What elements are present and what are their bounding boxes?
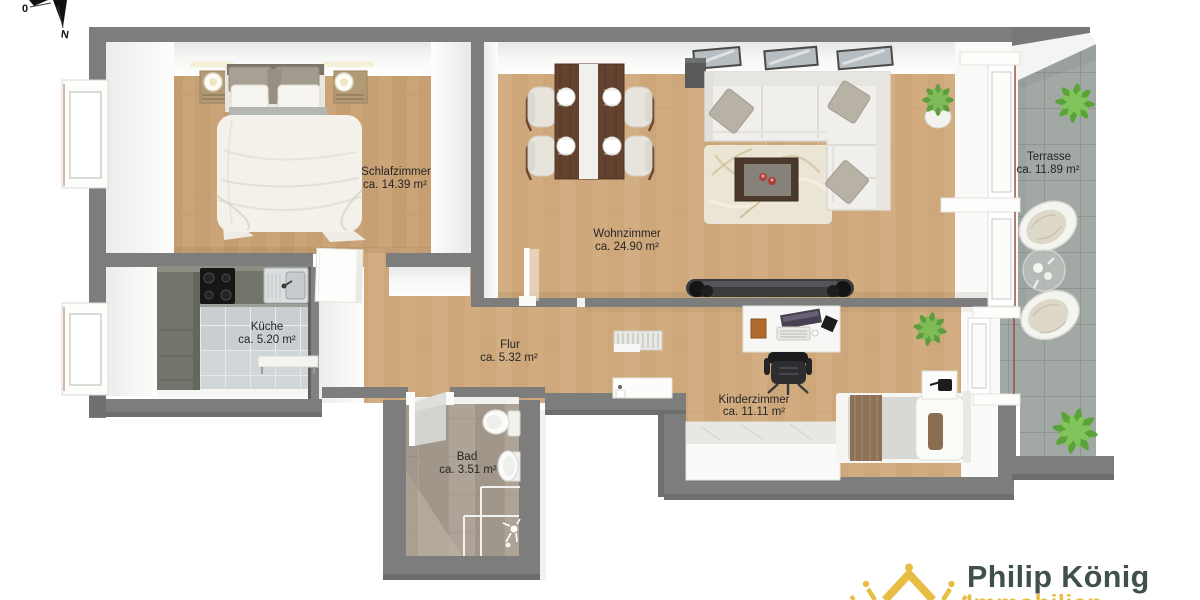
svg-text:0: 0 <box>22 3 28 15</box>
svg-text:ca. 11.11 m²: ca. 11.11 m² <box>723 406 785 418</box>
svg-text:ca. 5.20 m²: ca. 5.20 m² <box>238 334 296 346</box>
svg-text:Schlafzimmer: Schlafzimmer <box>361 166 431 178</box>
svg-text:ca. 5.32 m²: ca. 5.32 m² <box>480 352 538 364</box>
svg-text:Bad: Bad <box>457 451 477 463</box>
svg-text:ca. 24.90 m²: ca. 24.90 m² <box>595 241 659 253</box>
svg-text:Küche: Küche <box>251 321 284 333</box>
svg-text:ca. 14.39 m²: ca. 14.39 m² <box>363 179 427 191</box>
svg-text:Flur: Flur <box>500 339 520 351</box>
svg-text:Kinderzimmer: Kinderzimmer <box>719 394 790 406</box>
svg-text:ca. 11.89 m²: ca. 11.89 m² <box>1016 164 1079 176</box>
svg-text:Immobilien: Immobilien <box>966 590 1103 600</box>
svg-text:Terrasse: Terrasse <box>1027 151 1071 163</box>
svg-text:Philip König: Philip König <box>967 560 1150 594</box>
svg-text:Wohnzimmer: Wohnzimmer <box>593 228 661 240</box>
svg-text:ca. 3.51 m²: ca. 3.51 m² <box>439 464 497 476</box>
